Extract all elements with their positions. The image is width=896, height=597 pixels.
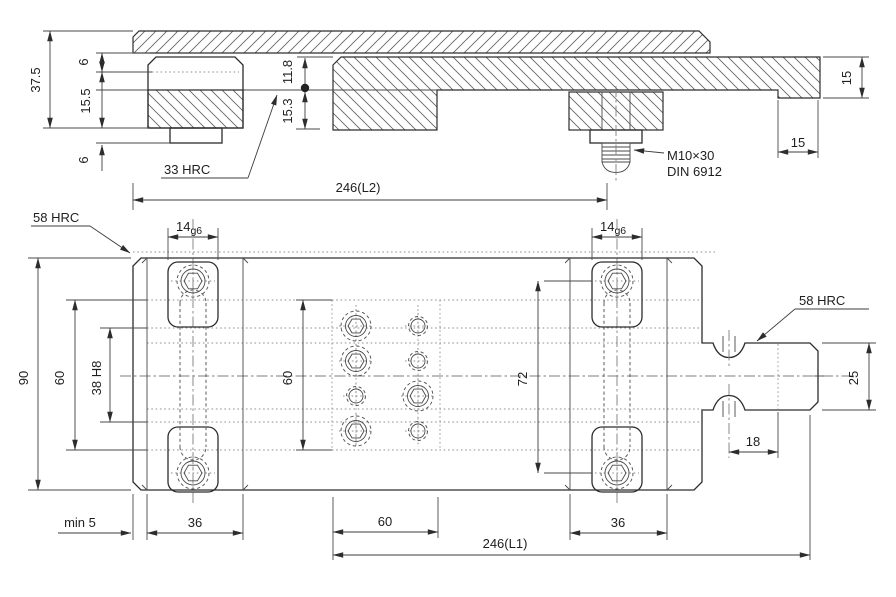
dim-hole-field-length: 60 <box>378 514 392 529</box>
dim-center-groove: 38 H8 <box>89 361 104 396</box>
dim-pad-width-right: 36 <box>611 515 625 530</box>
dim-rail-lower: 15.3 <box>280 98 295 123</box>
dim-pad-width-left: 36 <box>188 515 202 530</box>
dim-end-thickness: 15 <box>839 71 854 85</box>
dim-hole-field-height: 60 <box>280 371 295 385</box>
label-hardness-tongue: 58 HRC <box>799 293 845 308</box>
dim-body-width: 90 <box>16 371 31 385</box>
top-bar-section <box>133 31 710 53</box>
dim-total-height: 37.5 <box>28 67 43 92</box>
dim-rail-upper: 11.8 <box>280 60 295 84</box>
label-screw-spec-1: M10×30 <box>667 148 714 163</box>
dim-relief-offset: 18 <box>746 434 760 449</box>
dim-jaw-top: 6 <box>76 58 91 65</box>
dim-min-clearance: min 5 <box>64 515 96 530</box>
technical-drawing: 37.5 6 15.5 6 11.8 15.3 15 15 <box>0 0 896 597</box>
jaw-lower-section <box>148 90 243 128</box>
dim-length-l1: 246(L1) <box>483 536 528 551</box>
dim-groove-span: 60 <box>52 371 67 385</box>
dim-screw-spacing: 72 <box>515 372 530 386</box>
dim-tongue-width: 25 <box>846 371 861 385</box>
datum-dot <box>301 84 309 92</box>
dim-end-step: 15 <box>791 135 805 150</box>
label-hardness-body: 58 HRC <box>33 210 79 225</box>
dim-base-gap: 6 <box>76 156 91 163</box>
dim-length-l2: 246(L2) <box>336 180 381 195</box>
label-hardness-jaw: 33 HRC <box>164 162 210 177</box>
drawing-canvas: 37.5 6 15.5 6 11.8 15.3 15 15 <box>0 0 896 597</box>
label-screw-spec-2: DIN 6912 <box>667 164 722 179</box>
dim-jaw-lower: 15.5 <box>78 88 93 113</box>
